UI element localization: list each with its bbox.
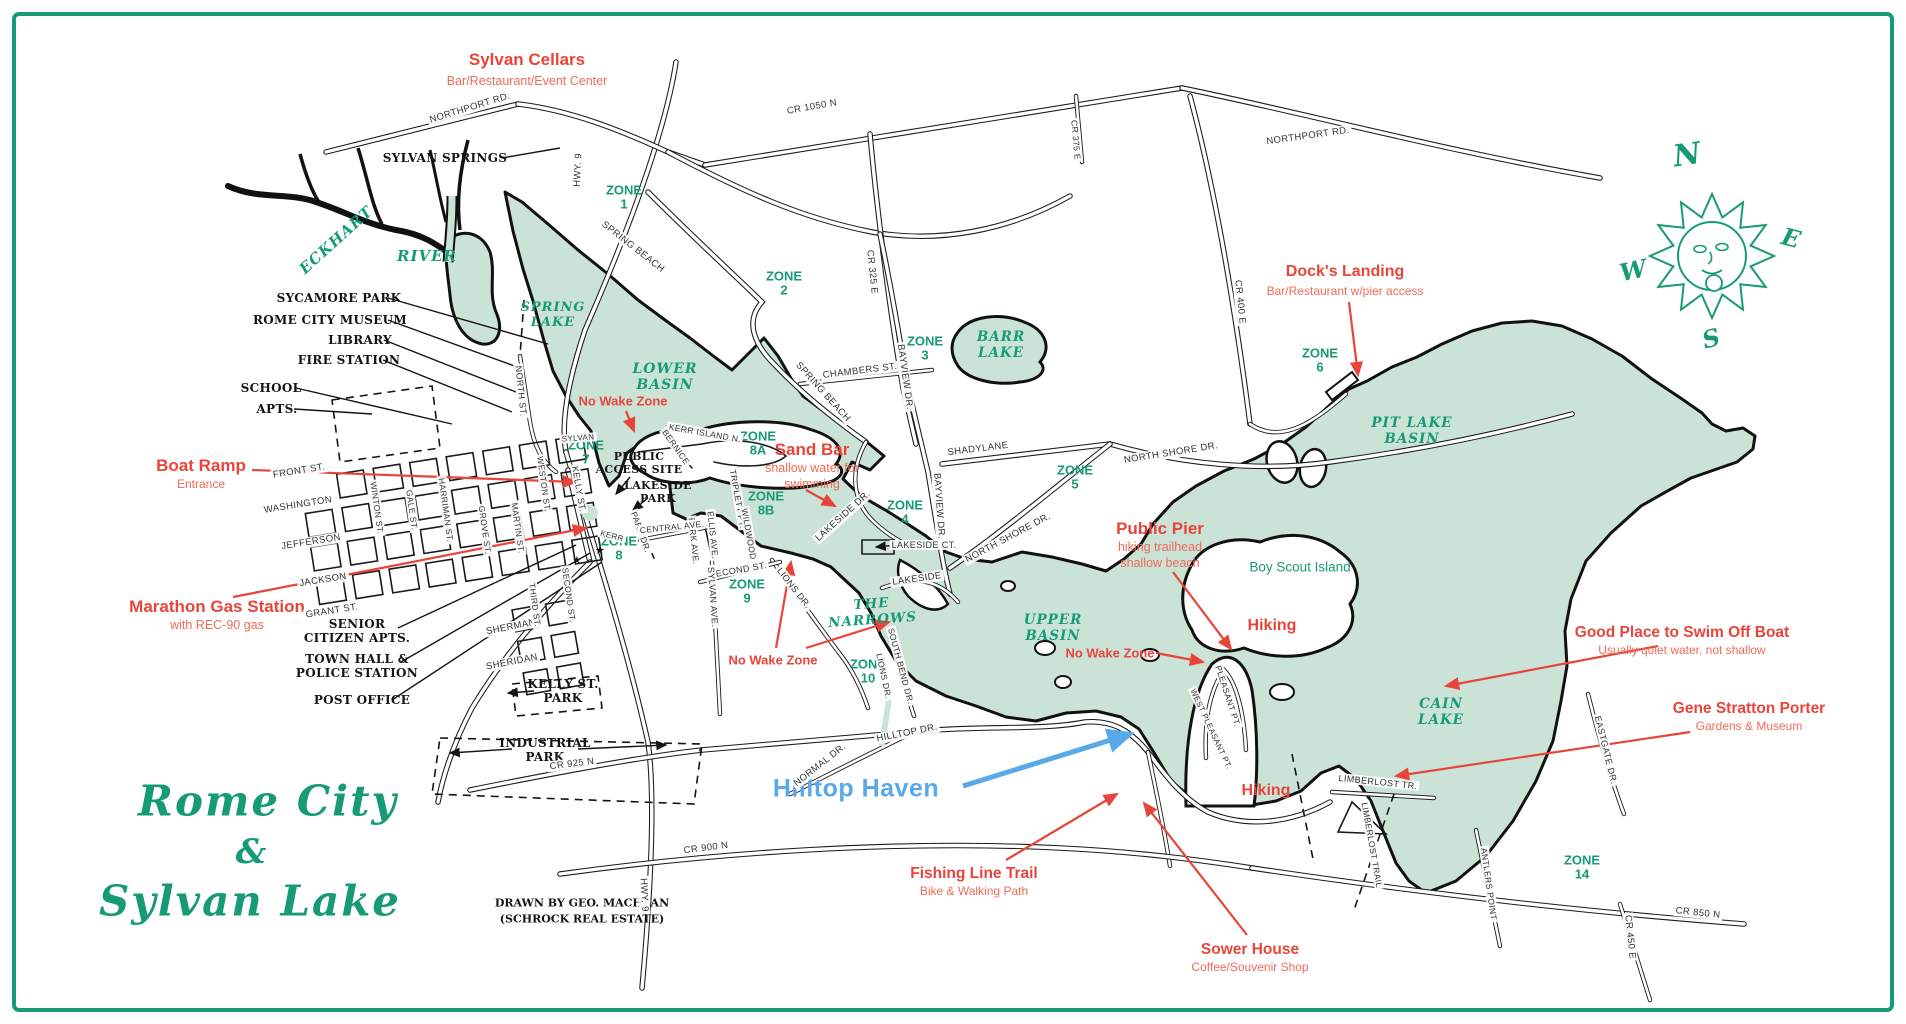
industrial-arrow-right — [578, 745, 666, 749]
rome-city-sylvan-lake-map: Sylvan CellarsBar/Restaurant/Event Cente… — [0, 0, 1906, 1024]
map-canvas — [0, 0, 1906, 1024]
boat-ramp-arrow — [252, 470, 576, 482]
fire-leader — [383, 360, 512, 412]
compass-rose — [1650, 194, 1774, 318]
sower-arrow — [1144, 803, 1247, 935]
library-leader — [384, 340, 516, 392]
sylvan-springs-leader — [502, 148, 560, 158]
industrial-arrow-left — [450, 749, 512, 753]
public-access-arrow — [616, 477, 630, 494]
hilltop-haven-arrow — [963, 734, 1130, 786]
docks-arrow — [1349, 302, 1358, 375]
lake-shapes — [446, 192, 1755, 893]
senior-leader — [398, 545, 576, 628]
town-hall-leader — [401, 553, 590, 662]
river-shapes — [228, 140, 468, 262]
kelly-park-arrow — [508, 691, 534, 693]
lakeside-park-arrow — [633, 498, 648, 510]
